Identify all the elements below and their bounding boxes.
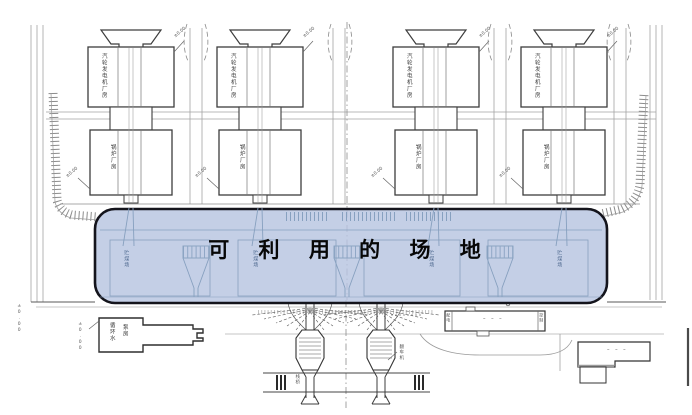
coal-jetty [252,303,439,404]
unit-blocks [78,30,617,203]
tippler-right [323,303,439,404]
unit-3-structure [383,30,489,203]
unit-4-structure [511,30,617,203]
pump-house [89,318,203,352]
quay-hatch-right [415,375,423,390]
storage-building [578,342,650,383]
workshop-building [420,302,572,355]
quay-hatch-left [277,375,285,390]
site-plan-drawing: 可 利 用 的 场 地 汽轮发电机厂房 锅炉厂房 ±0.00 ±0.00 贮煤场… [0,0,692,415]
plan-linework [0,0,692,415]
usable-area-title: 可 利 用 的 场 地 [170,234,530,264]
unit-2-structure [207,30,313,203]
unit-1-structure [78,30,184,203]
tippler-left [252,303,368,404]
